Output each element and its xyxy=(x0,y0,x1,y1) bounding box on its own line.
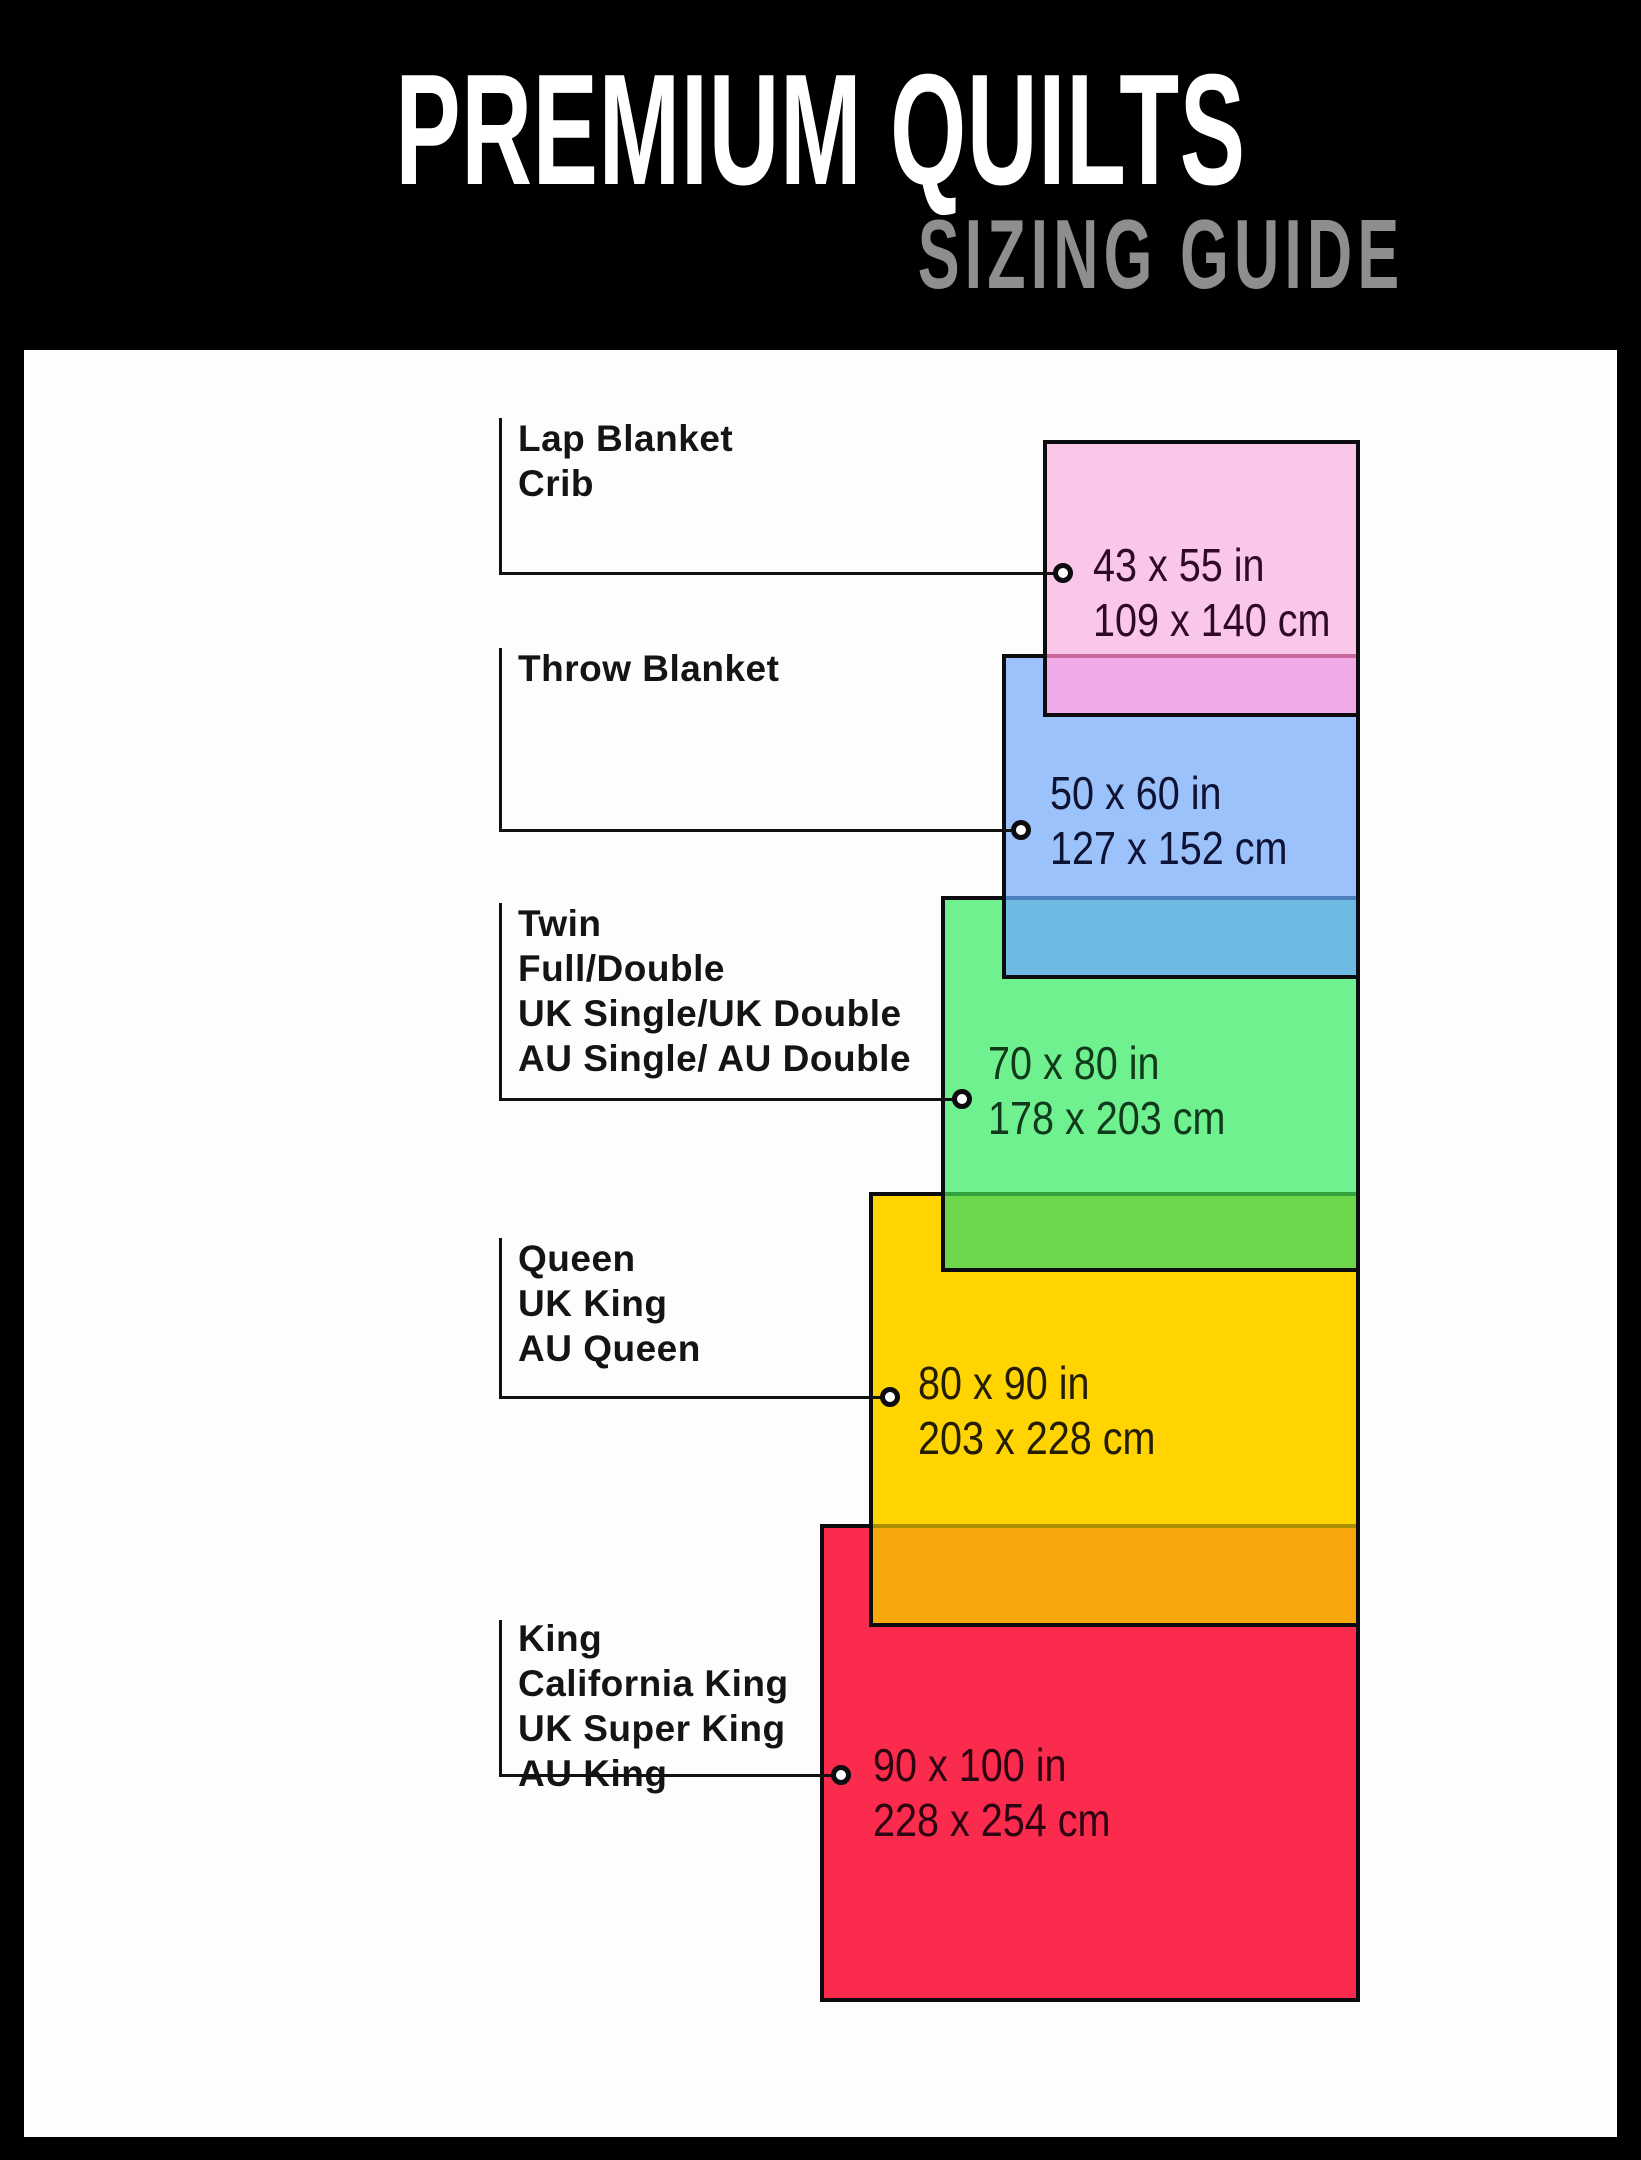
leader-horizontal-lap xyxy=(499,572,1055,575)
measurement-cm: 178 x 203 cm xyxy=(988,1091,1226,1146)
label-line: AU Single/ AU Double xyxy=(518,1036,911,1081)
label-lap-blanket: Lap Blanket Crib xyxy=(518,416,733,506)
measurement-cm: 228 x 254 cm xyxy=(873,1793,1111,1848)
label-line: Queen xyxy=(518,1236,701,1281)
label-line: King xyxy=(518,1616,789,1661)
label-line: Throw Blanket xyxy=(518,646,779,691)
overlap-green-over-yellow xyxy=(945,1192,1356,1268)
label-line: UK Super King xyxy=(518,1706,789,1751)
marker-dot-lap xyxy=(1053,563,1073,583)
marker-dot-king xyxy=(831,1765,851,1785)
measurement-king: 90 x 100 in 228 x 254 cm xyxy=(873,1738,1111,1848)
label-queen: Queen UK King AU Queen xyxy=(518,1236,701,1371)
label-line: Full/Double xyxy=(518,946,911,991)
measurement-inches: 80 x 90 in xyxy=(918,1356,1156,1411)
marker-dot-twin xyxy=(952,1089,972,1109)
measurement-queen: 80 x 90 in 203 x 228 cm xyxy=(918,1356,1156,1466)
measurement-inches: 90 x 100 in xyxy=(873,1738,1111,1793)
label-twin: Twin Full/Double UK Single/UK Double AU … xyxy=(518,901,911,1081)
infographic-page: PREMIUM QUILTS SIZING GUIDE 43 x 55 in 1… xyxy=(0,0,1641,2160)
label-line: California King xyxy=(518,1661,789,1706)
measurement-inches: 50 x 60 in xyxy=(1050,766,1288,821)
label-line: Crib xyxy=(518,461,733,506)
measurement-cm: 203 x 228 cm xyxy=(918,1411,1156,1466)
leader-horizontal-twin xyxy=(499,1098,955,1101)
measurement-inches: 43 x 55 in xyxy=(1093,538,1331,593)
label-king: King California King UK Super King AU Ki… xyxy=(518,1616,789,1796)
overlap-pink-over-blue xyxy=(1047,654,1356,713)
measurement-inches: 70 x 80 in xyxy=(988,1036,1226,1091)
marker-dot-throw xyxy=(1011,820,1031,840)
label-line: UK King xyxy=(518,1281,701,1326)
label-line: Twin xyxy=(518,901,911,946)
marker-dot-queen xyxy=(880,1387,900,1407)
measurement-twin: 70 x 80 in 178 x 203 cm xyxy=(988,1036,1226,1146)
leader-vertical-twin xyxy=(499,903,502,1101)
page-title: PREMIUM QUILTS xyxy=(312,40,1329,221)
overlap-blue-over-green xyxy=(1006,896,1356,975)
leader-horizontal-king xyxy=(499,1774,834,1777)
label-line: AU Queen xyxy=(518,1326,701,1371)
leader-vertical-king xyxy=(499,1620,502,1777)
label-line: Lap Blanket xyxy=(518,416,733,461)
leader-horizontal-queen xyxy=(499,1396,883,1399)
leader-vertical-lap xyxy=(499,418,502,575)
measurement-cm: 109 x 140 cm xyxy=(1093,593,1331,648)
measurement-cm: 127 x 152 cm xyxy=(1050,821,1288,876)
measurement-lap-blanket: 43 x 55 in 109 x 140 cm xyxy=(1093,538,1331,648)
label-throw-blanket: Throw Blanket xyxy=(518,646,779,691)
leader-horizontal-throw xyxy=(499,829,1014,832)
leader-vertical-queen xyxy=(499,1238,502,1399)
label-line: UK Single/UK Double xyxy=(518,991,911,1036)
page-subtitle: SIZING GUIDE xyxy=(917,198,1404,311)
leader-vertical-throw xyxy=(499,648,502,832)
measurement-throw-blanket: 50 x 60 in 127 x 152 cm xyxy=(1050,766,1288,876)
overlap-yellow-over-red xyxy=(873,1524,1356,1623)
